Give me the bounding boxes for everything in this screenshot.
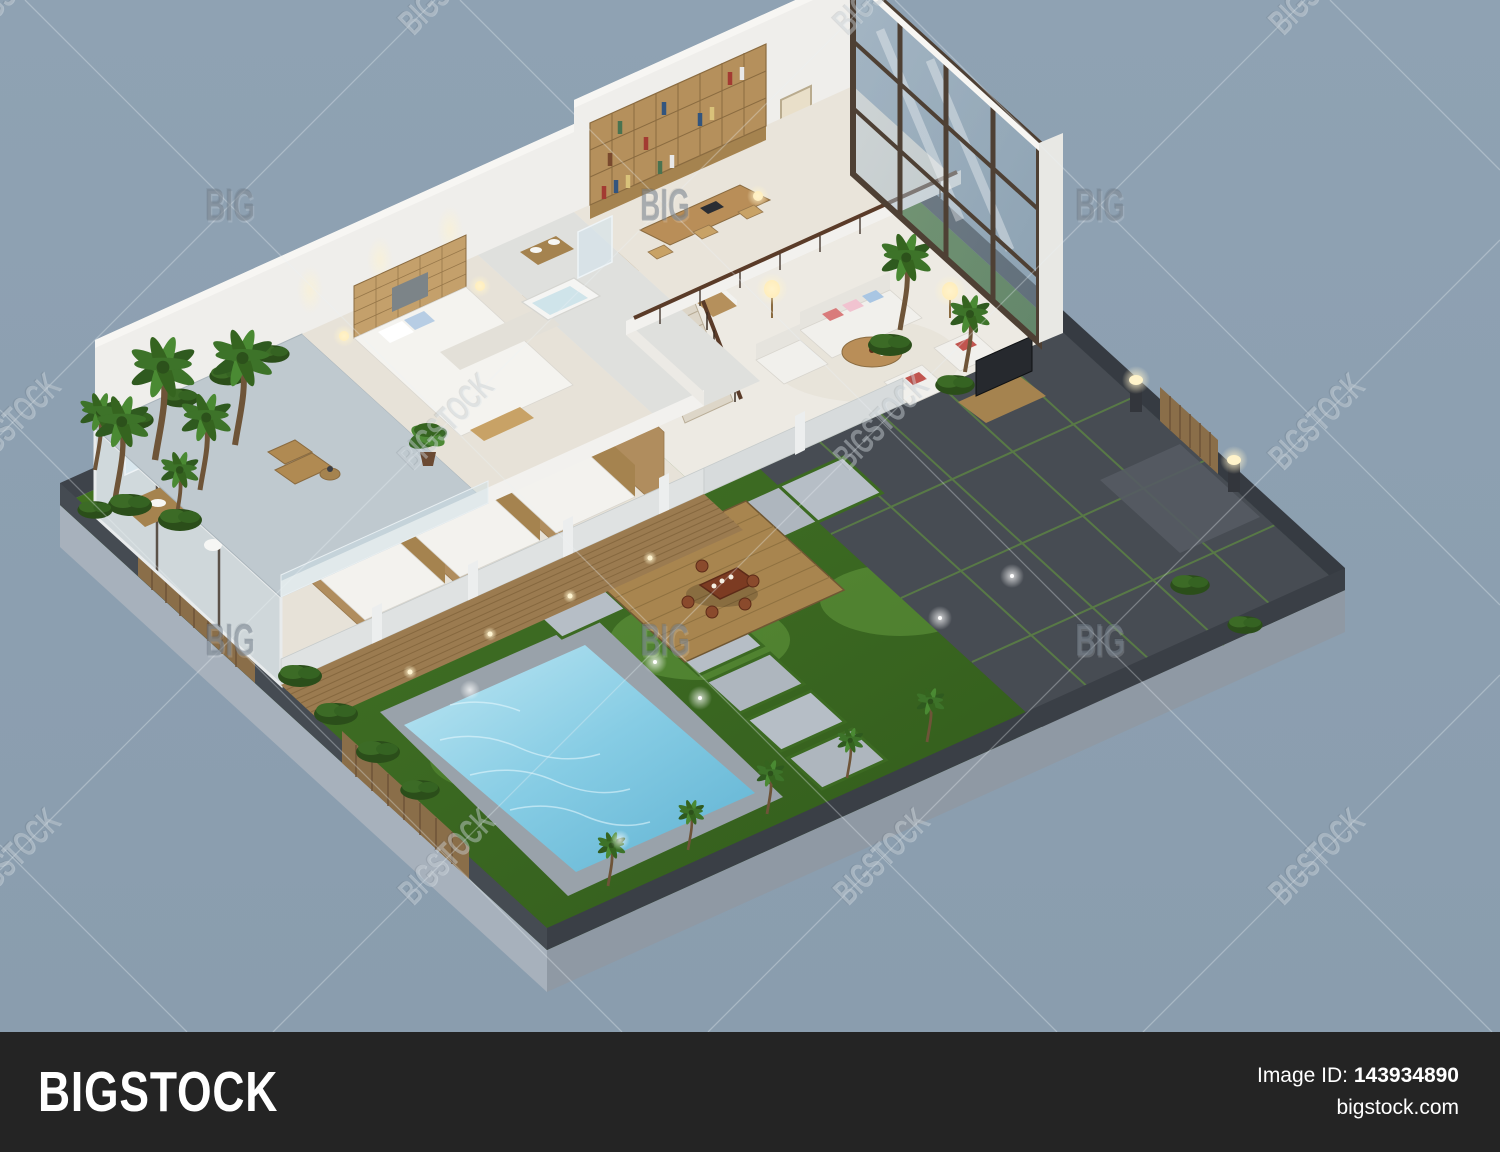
villa-3d-rendering: BIG BIG BIG BIG BIG BIG BIGSTOCK BIGSTOC… — [0, 0, 1500, 1032]
website-text: bigstock.com — [1257, 1092, 1459, 1124]
footer-meta: Image ID: 143934890 bigstock.com — [1257, 1060, 1459, 1124]
stock-photo-page: BIG BIG BIG BIG BIG BIG BIGSTOCK BIGSTOC… — [0, 0, 1500, 1152]
watermark-big: BIG — [205, 615, 255, 665]
bigstock-logo: BIGSTOCK — [38, 1059, 278, 1125]
footer-bar: BIGSTOCK Image ID: 143934890 bigstock.co… — [0, 1032, 1500, 1152]
image-id-value: 143934890 — [1354, 1064, 1459, 1087]
image-id-line: Image ID: 143934890 — [1257, 1060, 1459, 1092]
watermark-big: BIG — [640, 615, 690, 665]
watermark-big: BIG — [205, 180, 255, 230]
image-id-label: Image ID: — [1257, 1064, 1348, 1087]
watermark-big: BIG — [640, 180, 690, 230]
villa-rendering-area: BIG BIG BIG BIG BIG BIG BIGSTOCK BIGSTOC… — [0, 0, 1500, 1032]
watermark-big: BIG — [1075, 180, 1125, 230]
watermark-big: BIG — [1075, 615, 1125, 665]
